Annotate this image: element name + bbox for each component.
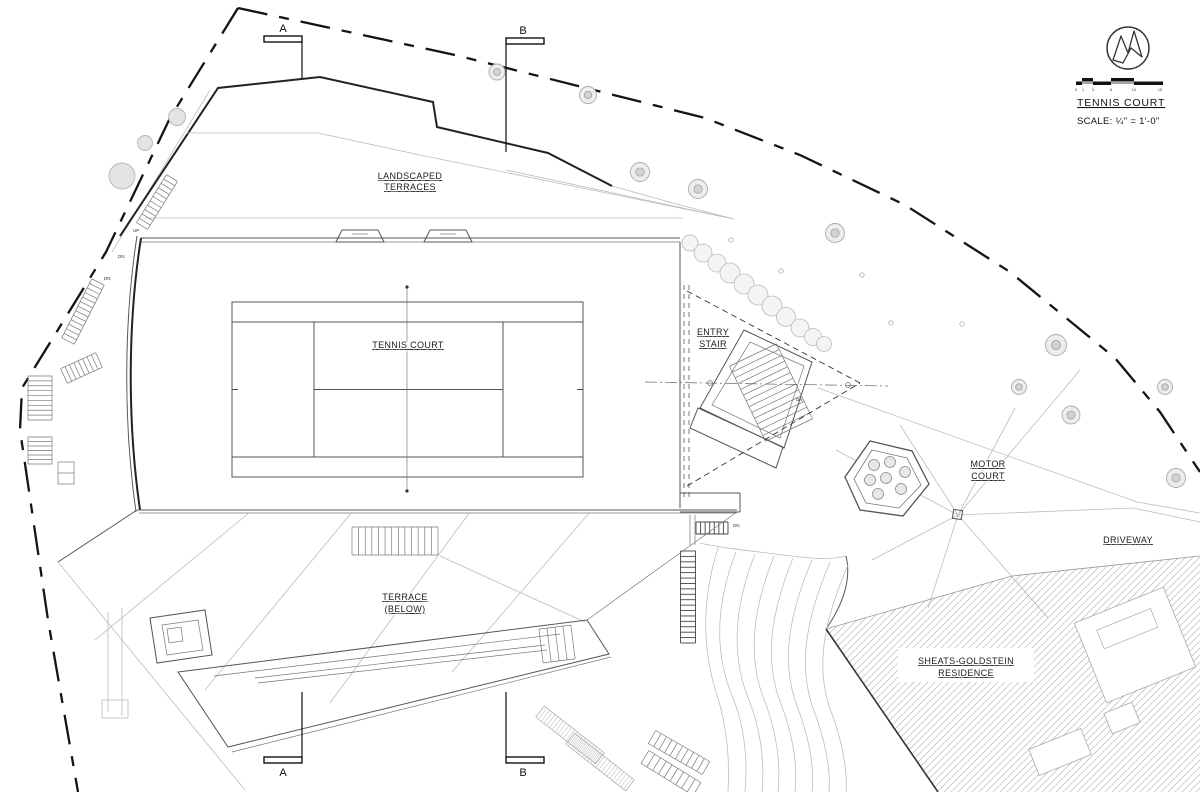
trees — [109, 64, 1186, 488]
net-post-icon — [405, 285, 408, 288]
north-arrow-icon — [1107, 27, 1149, 69]
site-plan-drawing: A B A B LANDSCAPED TERRACES TENNIS COURT… — [0, 0, 1200, 792]
section-marker-a-bottom: A — [264, 692, 302, 779]
annotation-dn: DN — [733, 523, 740, 528]
terrain-contours — [700, 543, 848, 792]
terrace-below — [58, 510, 737, 791]
scale-bar: 0 1 3 6 10 15 — [1075, 78, 1163, 92]
planter — [845, 441, 929, 516]
scale-tick: 15 — [1158, 87, 1163, 92]
bench-icon — [424, 230, 472, 242]
scale-tick: 1 — [1082, 87, 1085, 92]
scale-tick: 3 — [1092, 87, 1095, 92]
section-letter: A — [279, 767, 287, 779]
tennis-court-lines — [232, 285, 583, 492]
title-block: 0 1 3 6 10 15 TENNIS COURT SCALE: ¼" = 1… — [1075, 27, 1165, 127]
driveway — [1133, 502, 1200, 522]
sheet-title: TENNIS COURT — [1077, 97, 1165, 109]
label-entry-stair: ENTRY — [697, 327, 729, 337]
section-marker-b-top: B — [506, 25, 544, 152]
landscaped-terraces — [120, 77, 734, 236]
label-landscaped-terraces: TERRACES — [384, 182, 436, 192]
section-letter: B — [519, 25, 526, 37]
section-marker-a-top: A — [264, 23, 302, 78]
scale-tick: 10 — [1132, 87, 1137, 92]
site-plan-sheet: A B A B LANDSCAPED TERRACES TENNIS COURT… — [0, 0, 1200, 792]
label-motor-court: COURT — [971, 471, 1005, 481]
terrace-opening — [150, 610, 212, 663]
scale-tick: 6 — [1110, 87, 1113, 92]
section-letter: A — [279, 23, 287, 35]
entry-stair — [645, 291, 888, 486]
label-motor-court: MOTOR — [970, 459, 1005, 469]
label-entry-stair: STAIR — [699, 339, 727, 349]
annotation-dn: DN — [104, 276, 111, 281]
shrub-marker-icon — [729, 238, 964, 326]
residence-roof — [820, 550, 1200, 792]
label-terrace-below: TERRACE — [382, 592, 427, 602]
annotation-up: UP — [133, 228, 139, 233]
annotation-dn: DN — [796, 397, 803, 402]
bench-icon — [336, 230, 384, 242]
section-marker-b-bottom: B — [506, 692, 544, 779]
tree-icon — [489, 64, 1186, 488]
louver-strips — [536, 706, 635, 791]
label-driveway: DRIVEWAY — [1103, 535, 1153, 545]
scale-label: SCALE: ¼" = 1'-0" — [1077, 116, 1160, 127]
lower-stairs — [352, 522, 728, 792]
ramp-wedge — [178, 620, 611, 752]
section-letter: B — [519, 767, 526, 779]
annotation-dn: DN — [118, 254, 125, 259]
label-terrace-below: (BELOW) — [385, 604, 426, 614]
net-post-icon — [405, 489, 408, 492]
label-landscaped-terraces: LANDSCAPED — [378, 171, 443, 181]
scale-tick: 0 — [1075, 87, 1078, 92]
label-tennis-court: TENNIS COURT — [372, 340, 444, 350]
section-markers: A B A B — [264, 23, 544, 779]
label-residence: RESIDENCE — [938, 668, 994, 678]
tennis-court-platform — [127, 230, 740, 545]
label-residence: SHEATS-GOLDSTEIN — [918, 656, 1014, 666]
